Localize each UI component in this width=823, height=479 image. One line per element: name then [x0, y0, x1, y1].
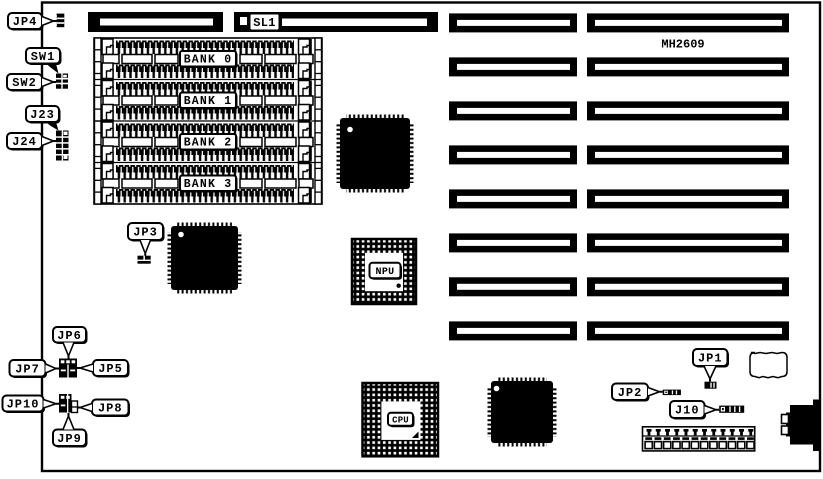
svg-text:SW1: SW1 [31, 50, 56, 64]
svg-text:JP6: JP6 [57, 329, 82, 343]
svg-text:JP10: JP10 [7, 398, 40, 412]
svg-text:JP1: JP1 [698, 352, 723, 366]
svg-text:MH2609: MH2609 [661, 38, 704, 52]
svg-text:JP2: JP2 [618, 386, 643, 400]
svg-text:CPU: CPU [392, 415, 409, 425]
svg-text:JP5: JP5 [98, 362, 123, 376]
svg-text:J23: J23 [30, 108, 55, 122]
svg-text:JP4: JP4 [13, 15, 38, 29]
svg-text:JP3: JP3 [133, 226, 158, 240]
svg-text:NPU: NPU [376, 267, 395, 278]
svg-text:BANK 3: BANK 3 [184, 178, 233, 191]
svg-text:BANK 0: BANK 0 [184, 54, 233, 67]
svg-text:SL1: SL1 [253, 16, 276, 30]
svg-text:SW2: SW2 [12, 76, 37, 90]
svg-text:BANK 2: BANK 2 [184, 137, 233, 150]
svg-text:JP9: JP9 [57, 432, 82, 446]
svg-text:BANK 1: BANK 1 [184, 95, 233, 108]
svg-text:J24: J24 [12, 135, 37, 149]
svg-text:J10: J10 [675, 404, 700, 418]
svg-text:JP8: JP8 [98, 402, 123, 416]
svg-text:JP7: JP7 [15, 362, 40, 376]
